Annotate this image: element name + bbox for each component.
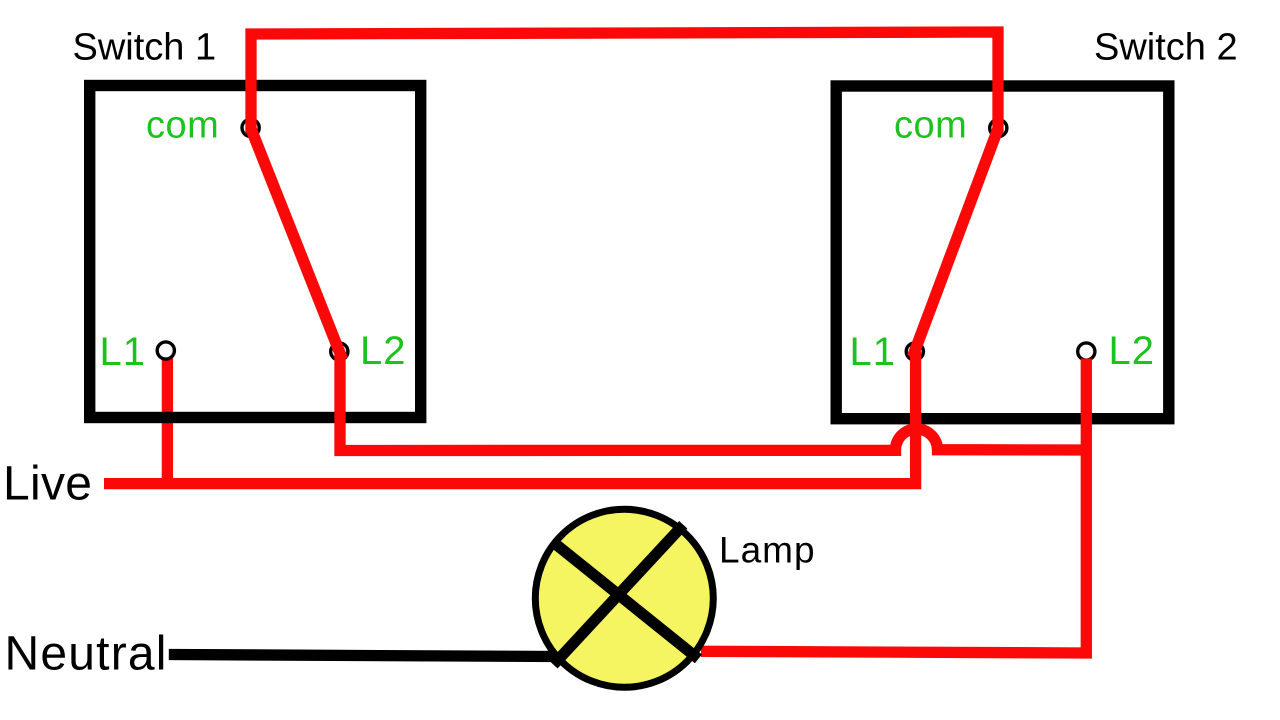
svg-text:Live: Live [3,458,92,511]
svg-text:com: com [146,105,219,147]
svg-text:Switch 1: Switch 1 [73,27,217,69]
svg-text:Switch 2: Switch 2 [1094,27,1238,69]
svg-text:Lamp: Lamp [719,530,816,571]
svg-text:com: com [894,105,967,147]
svg-text:Neutral: Neutral [5,628,168,681]
svg-text:L2: L2 [1109,329,1156,373]
svg-text:L2: L2 [360,329,407,373]
svg-text:L1: L1 [100,330,147,374]
svg-text:L1: L1 [850,330,897,374]
